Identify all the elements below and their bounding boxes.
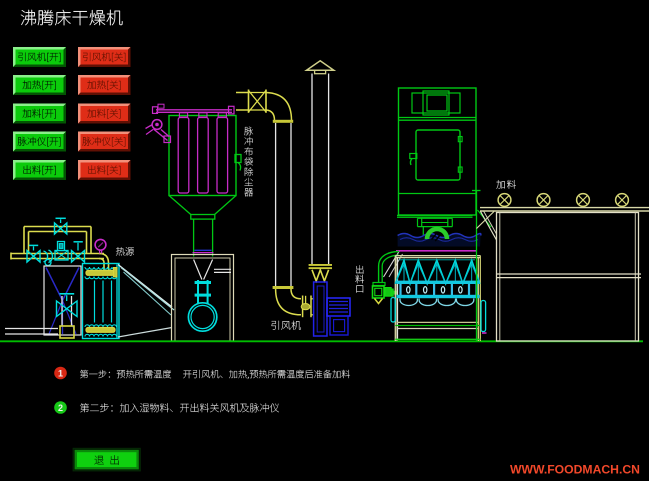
svg-text:2: 2 [58,403,63,413]
svg-text:1: 1 [58,369,63,379]
svg-text:WWW.FOODMACH.CN: WWW.FOODMACH.CN [510,463,640,477]
